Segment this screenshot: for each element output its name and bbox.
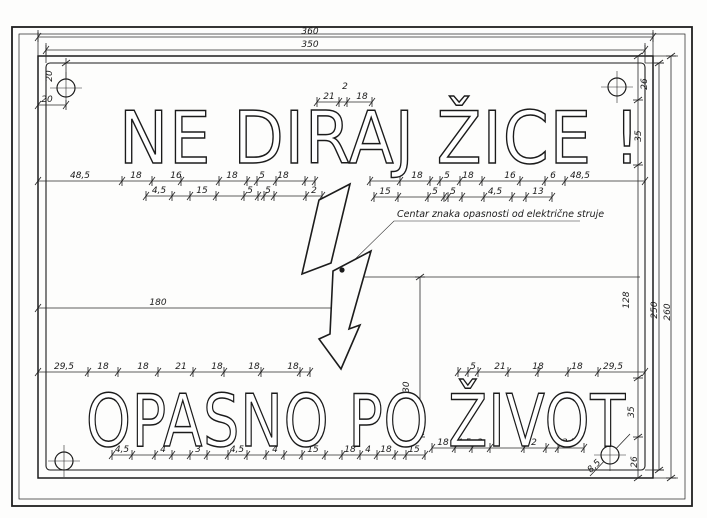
drawing-canvas: 360350202026352121848,518161851818518166… [0, 0, 707, 518]
dim-label: 250 [650, 301, 660, 318]
dim-label: 260 [663, 303, 673, 320]
dim-label: 4,5 [152, 186, 167, 196]
lightning-bolt-icon [302, 184, 371, 369]
dim-label: 128 [622, 291, 632, 308]
annotation-leader-line [344, 221, 580, 270]
dim-label: 18 [248, 362, 260, 372]
dim-label: 18 [137, 362, 149, 372]
dim-label: 2 [311, 186, 317, 196]
blueprint-page: 360350202026352121848,518161851818518166… [0, 0, 707, 518]
dim-label: 5 [265, 186, 271, 196]
dim-label: 5 [432, 187, 438, 197]
dim-label: 15 [379, 187, 391, 197]
dim-label: 350 [301, 40, 318, 50]
dim-label: 360 [301, 27, 318, 37]
dim-label: 21 [175, 362, 186, 372]
hazard-center-point [339, 267, 344, 272]
dim-label: 13 [532, 187, 544, 197]
dim-label: 18 [287, 362, 299, 372]
sign-text-line1: NE DIRAJ ŽICE ! [119, 96, 641, 180]
dim-label: 29,5 [54, 362, 74, 372]
dim-label: 21 [494, 362, 505, 372]
dim-label: 4,5 [488, 187, 503, 197]
dim-label: 26 [630, 456, 640, 468]
dim-label: 20 [41, 95, 53, 105]
dim-label: 18 [97, 362, 109, 372]
dim-label: 5 [450, 187, 456, 197]
dim-label: 26 [640, 78, 650, 90]
dim-label: 18 [571, 362, 583, 372]
dim-label: 29,5 [603, 362, 623, 372]
dim-label: 5 [247, 186, 253, 196]
dim-label: 2 [342, 82, 348, 92]
mounting-hole-bottom-left [48, 445, 80, 477]
dim-label: 5 [470, 362, 476, 372]
dim-label: 35 [627, 406, 637, 418]
annotation-label: Centar znaka opasnosti od električne str… [397, 209, 604, 220]
dim-label: 18 [211, 362, 223, 372]
dim-label: 48,5 [70, 171, 90, 181]
dim-label: 15 [196, 186, 208, 196]
dim-label: 180 [149, 298, 166, 308]
dim-label: 20 [45, 70, 55, 82]
sign-text-line2: OPASNO PO ŽIVOT [86, 379, 626, 463]
